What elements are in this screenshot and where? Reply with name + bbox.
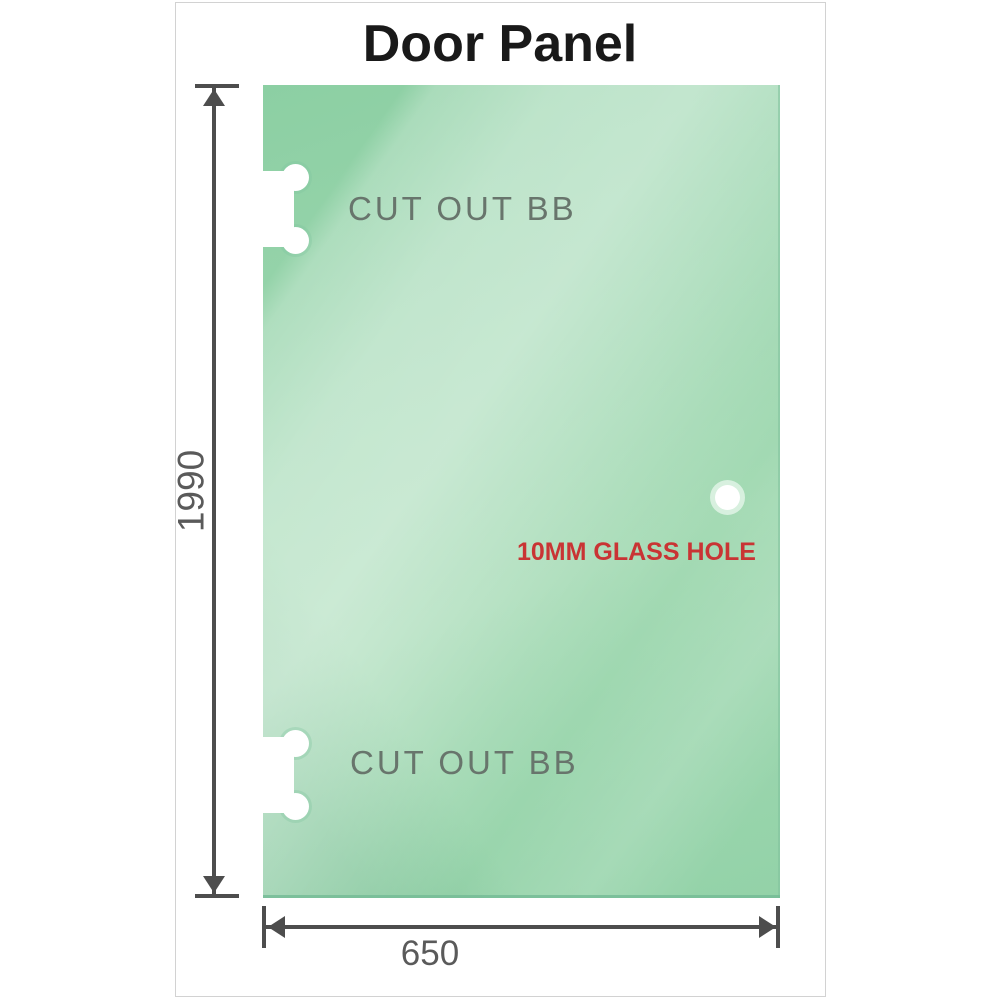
cutout-notch [263, 737, 294, 813]
height-dimension-cap-bottom [195, 894, 239, 898]
arrow-down-icon [203, 876, 225, 893]
arrow-left-icon [268, 916, 285, 938]
cutout-notch [263, 171, 294, 247]
door-panel-diagram: Door Panel CUT OUT BB CUT OUT BB 10MM GL… [0, 0, 1000, 1000]
height-dimension-cap-top [195, 84, 239, 88]
arrow-up-icon [203, 89, 225, 106]
hinge-cutout-top [263, 164, 311, 254]
page-title: Door Panel [175, 14, 825, 74]
width-dimension-value: 650 [350, 934, 510, 974]
cutout-top-label: CUT OUT BB [348, 190, 577, 228]
height-dimension-value: 1990 [156, 439, 228, 544]
width-dimension-line [266, 925, 778, 929]
glass-hole-label: 10MM GLASS HOLE [517, 538, 707, 567]
glass-hole-icon [715, 485, 740, 510]
hinge-cutout-bottom [263, 730, 311, 820]
arrow-right-icon [759, 916, 776, 938]
cutout-bottom-label: CUT OUT BB [350, 744, 579, 782]
